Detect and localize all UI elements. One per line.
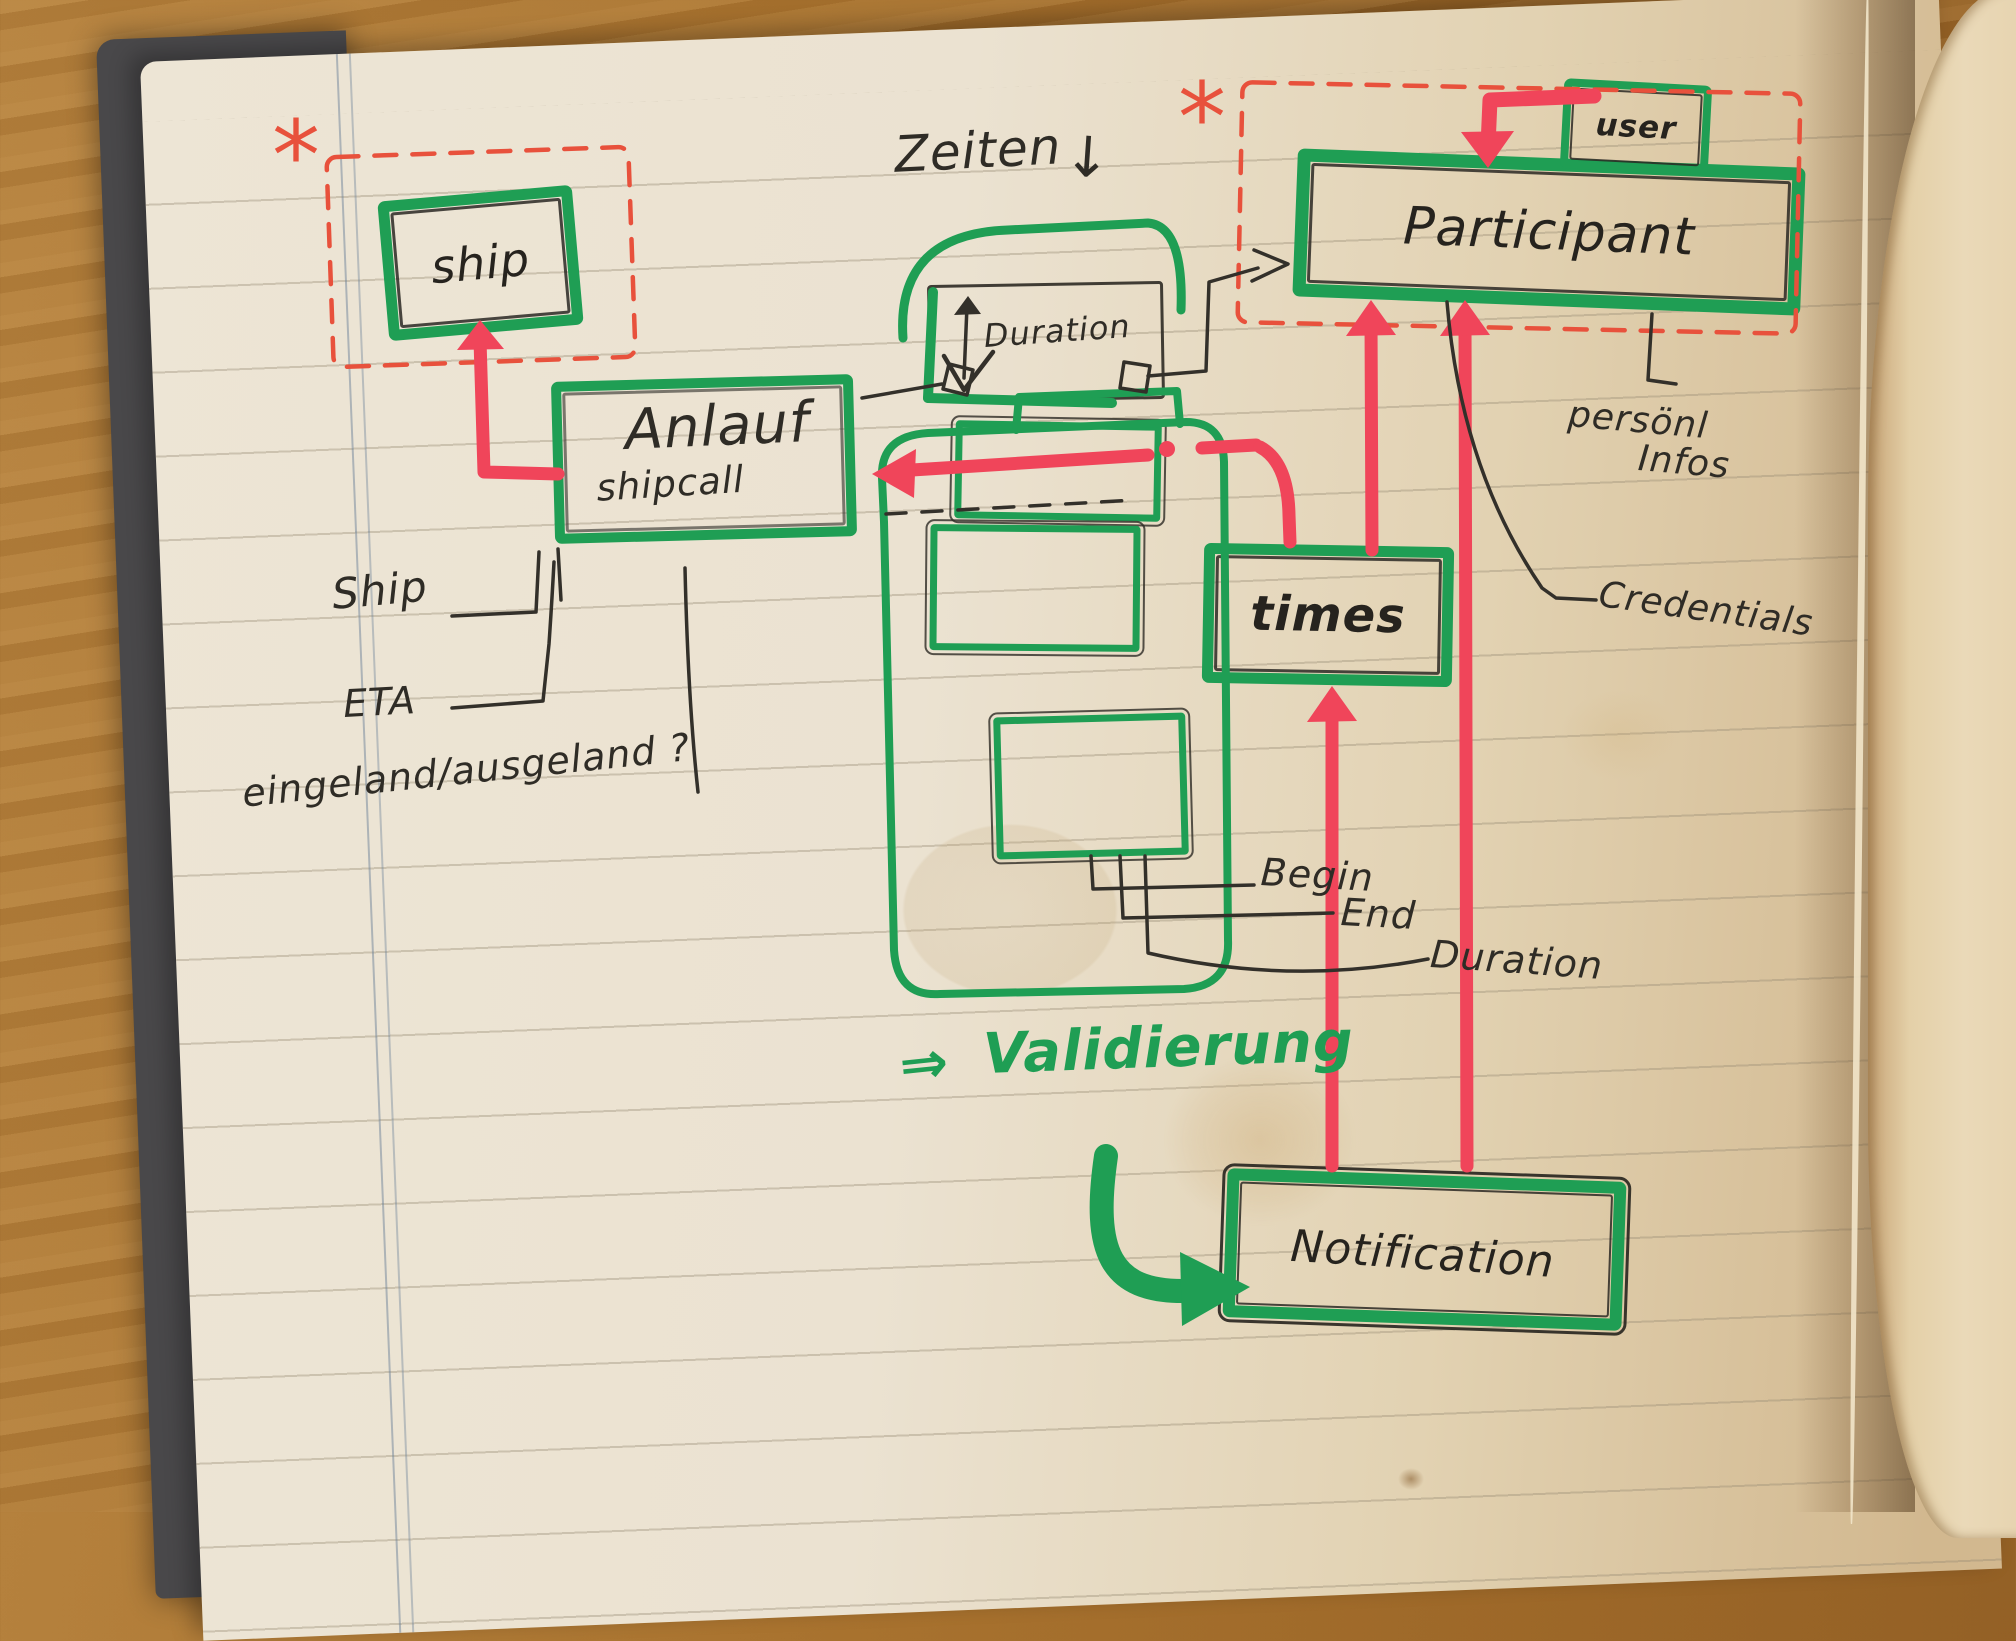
green-duration-bottom-edge [928, 398, 1112, 403]
sketch-canvas [0, 0, 2016, 1512]
ink-attr-line-ship [452, 552, 539, 616]
zeiten-down-arrow: ↓ [1061, 124, 1113, 192]
red-arrowhead-user [1461, 131, 1514, 168]
ink-diamond-right [1120, 362, 1150, 392]
attr-eta-label: ETA [342, 678, 417, 726]
red-dashed-scope-participant [1238, 82, 1801, 334]
ink-open-arrowhead-participant [1252, 250, 1288, 281]
attr-end-label: End [1340, 890, 1417, 938]
red-dash-segment [1202, 445, 1256, 448]
green-container-outline [882, 422, 1228, 994]
ink-updown-arrow-bottom-v [944, 352, 993, 390]
red-arrowhead-ship [457, 320, 504, 350]
ink-bracket-personal [1648, 314, 1676, 384]
ink-updown-arrowhead-top [954, 296, 981, 315]
red-dot [1159, 441, 1175, 457]
green-hook-arrowhead [1180, 1252, 1250, 1326]
red-arrow-into-anlauf [912, 455, 1148, 470]
validierung-arrow: ⇒ [896, 1027, 952, 1100]
red-arrow-notification-to-participant [1465, 320, 1467, 1166]
ink-attr-tick-ship [558, 549, 561, 600]
red-arrowhead-participant-left [1346, 300, 1396, 336]
attr-ship-label: Ship [330, 562, 430, 619]
ink-hand-dashed-line [886, 500, 1136, 514]
attr-personal-label-line2: Infos [1636, 438, 1731, 487]
red-elbow-from-times [1260, 447, 1290, 542]
zeiten-annotation: Zeiten [893, 117, 1063, 184]
green-duration-left-edge [928, 292, 933, 398]
asterisk-ship: * [272, 100, 321, 212]
validierung-annotation: Validierung [982, 1009, 1355, 1087]
asterisk-participant: * [1178, 62, 1227, 174]
red-arrowhead-times [1307, 686, 1357, 722]
red-arrow-times-to-participant [1371, 320, 1372, 550]
green-brace-over-duration [903, 223, 1182, 338]
green-hook-arrow [1102, 1156, 1185, 1291]
